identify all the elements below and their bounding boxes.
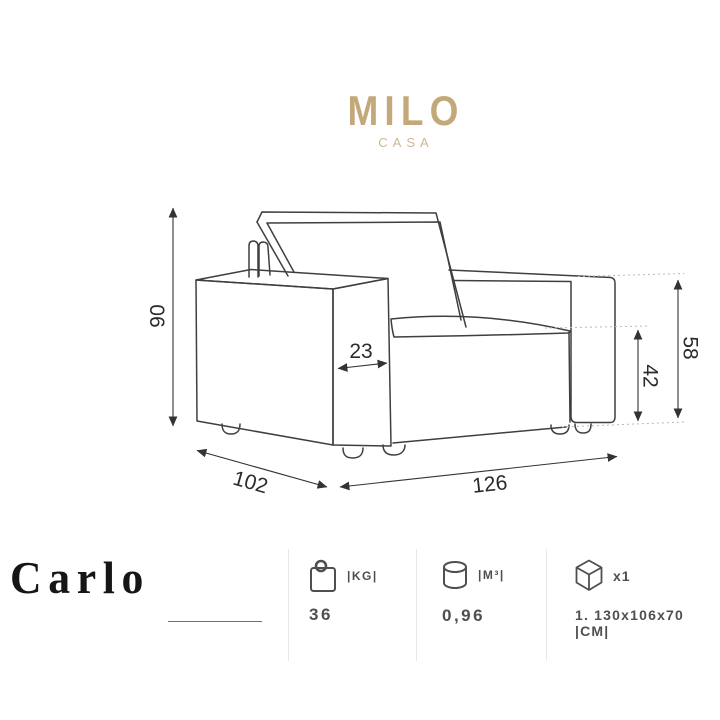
section-divider — [288, 549, 289, 661]
dim-armrest-height-label: 58 — [679, 336, 702, 359]
product-name: Carlo — [10, 551, 150, 604]
dim-depth-label: 102 — [230, 467, 270, 499]
weight-unit-label: |KG| — [347, 569, 378, 583]
chair-leg — [343, 448, 363, 458]
box-icon — [575, 559, 603, 592]
package-dimensions-value: 1. 130x106x70 |CM| — [575, 607, 720, 639]
volume-value: 0,96 — [442, 606, 505, 626]
section-divider — [546, 549, 547, 661]
volume-unit-label: |M³| — [478, 568, 505, 582]
left-armrest-front — [196, 280, 333, 445]
cylinder-icon — [442, 560, 468, 590]
divider-line — [168, 621, 262, 622]
dim-height-label: 90 — [146, 304, 169, 327]
back-cushion-seam — [267, 222, 461, 320]
guide-seat-level — [545, 326, 650, 328]
dim-width-label: 126 — [471, 471, 508, 498]
armchair-outline — [196, 212, 615, 458]
dim-armrest-width-label: 23 — [349, 340, 372, 363]
package-count-label: x1 — [613, 568, 631, 584]
weight-value: 36 — [309, 605, 378, 625]
spec-package: x1 1. 130x106x70 |CM| — [575, 559, 720, 639]
chair-leg — [575, 424, 591, 433]
seat-cushion — [391, 316, 570, 337]
back-frame-strip — [249, 241, 258, 277]
dim-armrest-width-line — [338, 363, 387, 369]
bag-icon — [309, 558, 337, 593]
spec-volume: |M³| 0,96 — [442, 560, 505, 626]
guide-armrest-top — [578, 274, 684, 277]
spec-weight: |KG| 36 — [309, 558, 378, 625]
section-divider — [416, 549, 417, 661]
base-front — [393, 333, 570, 443]
back-cushion-left-band — [257, 222, 294, 276]
dim-seat-height-label: 42 — [639, 364, 662, 387]
back-cushion — [257, 212, 466, 327]
product-spec-sheet: MILO CASA — [0, 0, 720, 720]
right-armrest — [449, 270, 615, 423]
